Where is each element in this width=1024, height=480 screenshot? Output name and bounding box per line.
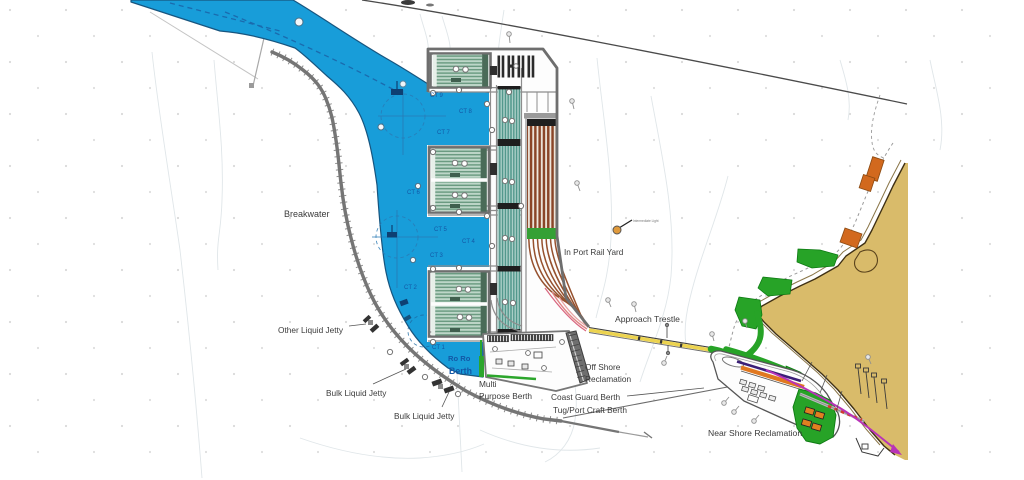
svg-text:Purpose Berth: Purpose Berth	[479, 391, 532, 401]
svg-text:In Port Rail Yard: In Port Rail Yard	[564, 248, 624, 257]
svg-text:CT 1: CT 1	[432, 345, 446, 351]
svg-text:Intermediate Light: Intermediate Light	[633, 219, 659, 223]
svg-text:Berth: Berth	[449, 366, 472, 376]
svg-text:Tug/Port Craft Berth: Tug/Port Craft Berth	[553, 405, 627, 415]
svg-text:CT 2: CT 2	[404, 285, 418, 291]
svg-text:CT 4: CT 4	[462, 239, 476, 245]
svg-text:Off Shore: Off Shore	[585, 362, 621, 372]
svg-text:CT 7: CT 7	[437, 130, 451, 136]
svg-text:CT 5: CT 5	[434, 227, 448, 233]
svg-text:Reclamation: Reclamation	[585, 374, 632, 384]
svg-text:Other Liquid Jetty: Other Liquid Jetty	[278, 325, 344, 335]
svg-text:CT 3: CT 3	[430, 253, 444, 259]
svg-text:CT 6: CT 6	[407, 190, 421, 196]
svg-text:Near Shore Reclamation: Near Shore Reclamation	[708, 428, 802, 438]
svg-text:Bulk Liquid Jetty: Bulk Liquid Jetty	[326, 388, 387, 398]
svg-text:Ro Ro: Ro Ro	[448, 354, 471, 363]
svg-text:Multi: Multi	[479, 379, 497, 389]
svg-text:CT 9: CT 9	[430, 93, 444, 99]
svg-text:CT 8: CT 8	[459, 109, 473, 115]
svg-text:Bulk Liquid Jetty: Bulk Liquid Jetty	[394, 411, 455, 421]
svg-text:Approach Trestle: Approach Trestle	[615, 314, 680, 324]
svg-text:Breakwater: Breakwater	[284, 209, 330, 219]
svg-text:Coast Guard Berth: Coast Guard Berth	[551, 392, 621, 402]
